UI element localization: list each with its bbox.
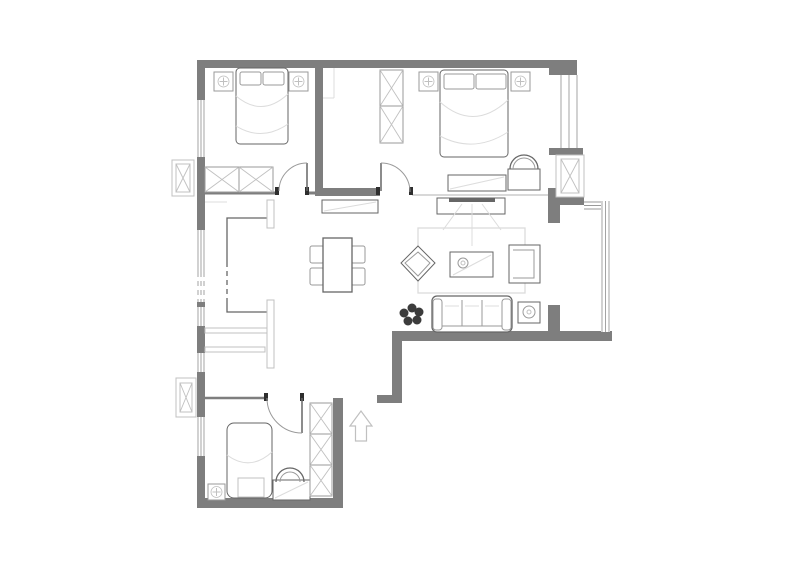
dressing-stool-back <box>510 155 538 169</box>
hall-partition-bottom <box>267 300 274 368</box>
floor-plan-page <box>0 0 800 565</box>
dressing-stool-back-inner <box>513 158 535 169</box>
dressing-stool <box>508 169 540 190</box>
sofa-frame <box>432 296 512 332</box>
side-table <box>518 302 540 323</box>
wall-left-1 <box>197 60 205 100</box>
ac-unit-top <box>176 164 190 192</box>
window-bed1-left <box>197 100 205 157</box>
wall-entry-vertical <box>392 331 402 403</box>
entry-arrow <box>350 411 372 441</box>
bed3-frame <box>227 423 272 498</box>
window-master-bay <box>560 75 578 148</box>
wall-living-stub <box>548 305 560 331</box>
master-door-post-left <box>376 187 380 195</box>
plant-petal-4 <box>404 317 413 326</box>
closet-wardrobe-bottom <box>380 106 403 143</box>
plant-center <box>410 313 414 317</box>
window-hall-left-4 <box>197 353 205 372</box>
master-door-swing <box>381 163 410 192</box>
bed1-nightstand-left-knob <box>218 76 229 87</box>
hall-niche-top <box>205 328 267 333</box>
plant-petal-3 <box>413 316 422 325</box>
dining-chair-4 <box>351 268 365 285</box>
bed1-door-post-left <box>275 187 279 195</box>
plant-petal-5 <box>400 309 409 318</box>
wall-right-stub <box>556 197 584 205</box>
hall-partition-top <box>267 200 274 228</box>
master-nightstand-left-knob <box>423 76 434 87</box>
dining-chair-1 <box>310 246 324 263</box>
closet-wardrobe-top <box>380 70 403 106</box>
bed1-door-swing <box>279 163 307 191</box>
window-hall-left-2 <box>197 272 205 302</box>
bed3-wardrobe-3 <box>310 465 332 496</box>
equipment-niche <box>561 159 579 193</box>
wall-bay-sill <box>549 148 583 155</box>
bed3-wardrobe-1 <box>310 403 332 434</box>
bed1-wardrobe-right <box>239 167 273 192</box>
wall-bed3-right <box>333 398 343 508</box>
window-bed3-left <box>197 417 205 456</box>
dining-chair-2 <box>310 268 324 285</box>
wall-closet-bottom <box>315 188 380 196</box>
armchair <box>509 245 540 283</box>
wall-left-tick <box>197 302 205 307</box>
ac-unit-bottom <box>180 383 192 412</box>
floor-plan-drawing <box>0 0 800 565</box>
dining-chair-3 <box>351 246 365 263</box>
wall-closet-left <box>315 67 323 188</box>
bed3-door-swing <box>267 398 302 433</box>
bed3-wardrobe-2 <box>310 434 332 465</box>
window-living-right <box>601 201 610 332</box>
tv-screen <box>449 198 495 202</box>
bed3-nightstand-knob <box>211 487 222 498</box>
dining-table <box>323 238 352 292</box>
window-hall-left-1 <box>197 230 205 272</box>
hall-niche-bottom <box>205 347 265 352</box>
wall-left-4 <box>197 372 205 417</box>
wall-bay-cap-top <box>549 60 577 75</box>
hall-closet-outline <box>227 218 267 312</box>
wall-left-3 <box>197 326 205 353</box>
bed1-wardrobe-left <box>205 167 239 192</box>
bed1-nightstand-right-knob <box>293 76 304 87</box>
window-hall-left-3 <box>197 307 205 326</box>
plant-petal-2 <box>415 308 424 317</box>
wall-top <box>197 60 560 68</box>
master-nightstand-right-knob <box>515 76 526 87</box>
